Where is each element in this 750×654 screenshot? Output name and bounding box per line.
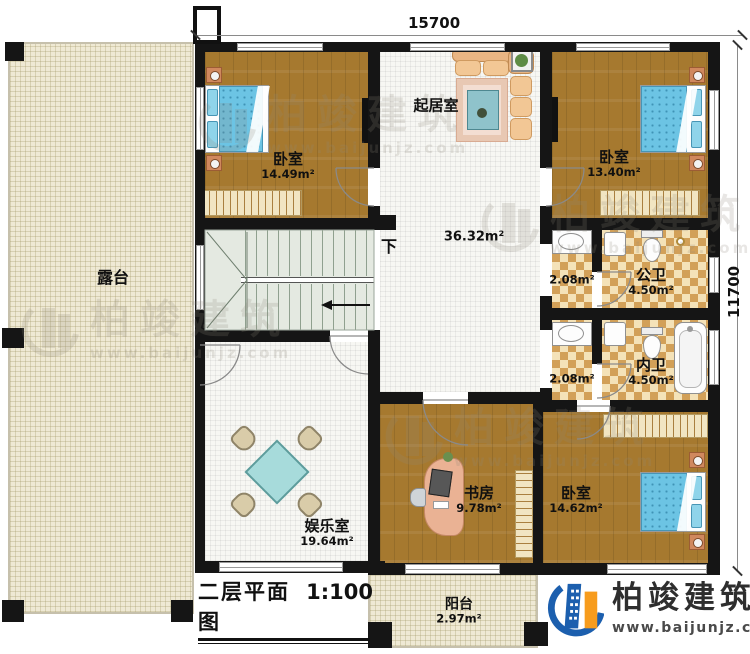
shower-head <box>676 237 685 246</box>
nightstand <box>689 534 705 550</box>
bathtub-inner <box>679 330 702 388</box>
window <box>196 87 204 150</box>
floor-plan: 柏竣建筑 www.baijunjz.com 柏竣建筑 www.baijunjz.… <box>0 0 750 654</box>
balcony-post <box>524 622 548 646</box>
room-area: 9.78m² <box>456 502 501 515</box>
plan-title: 二层平面图 <box>198 576 296 636</box>
nightstand <box>689 67 705 83</box>
title-underline <box>198 638 370 641</box>
wall <box>368 392 423 404</box>
room-name: 书房 <box>456 485 501 502</box>
dimension-line-top <box>195 35 742 36</box>
brand-name: 柏竣建筑 <box>612 583 750 614</box>
bathtub-drain <box>687 326 693 332</box>
sofa-cushion <box>510 76 532 96</box>
room-label-vestibule-top: 2.08m² <box>549 273 594 286</box>
nightstand <box>689 155 705 171</box>
table-decor <box>477 108 487 118</box>
stair-rail <box>241 277 374 283</box>
nightstand <box>206 155 222 171</box>
bed-pillow <box>207 89 218 116</box>
room-area: 4.50m² <box>628 374 673 387</box>
window <box>219 562 343 572</box>
room-area: 2.08m² <box>549 372 594 385</box>
terrace-post <box>171 600 193 622</box>
sofa-cushion <box>510 118 532 140</box>
room-name: 卧室 <box>261 151 314 168</box>
room-label-hall-area: 36.32m² <box>444 231 504 246</box>
room-label-terrace: 露台 <box>97 269 129 287</box>
terrace-floor <box>8 42 194 614</box>
plan-scale: 1:100 <box>306 580 373 604</box>
washing-machine <box>604 232 626 256</box>
window <box>607 564 707 574</box>
tv <box>552 97 558 142</box>
toilet-tank <box>641 327 663 335</box>
brand-logo-icon <box>546 576 604 642</box>
wardrobe <box>600 190 700 216</box>
window <box>709 330 719 385</box>
window <box>405 564 500 574</box>
room-label-private-bath: 内卫 4.50m² <box>628 357 673 387</box>
keyboard <box>433 501 449 509</box>
room-label-entertainment: 娱乐室 19.64m² <box>300 518 353 548</box>
washing-machine <box>604 322 626 346</box>
toilet-tank <box>641 230 663 238</box>
room-area: 2.97m² <box>436 612 481 625</box>
room-area: 36.32m² <box>444 231 504 246</box>
wall <box>540 218 720 230</box>
sink <box>558 325 584 342</box>
window <box>410 43 505 51</box>
wall <box>540 400 577 412</box>
wardrobe <box>202 190 302 216</box>
room-name: 卧室 <box>587 149 640 166</box>
window <box>576 43 670 51</box>
window <box>196 245 204 310</box>
window <box>709 90 719 150</box>
wall <box>592 320 602 364</box>
sofa-cushion <box>455 60 481 76</box>
bed-pillow <box>691 121 702 148</box>
room-area: 19.64m² <box>300 535 353 548</box>
wall <box>368 330 380 575</box>
wall <box>195 330 330 342</box>
room-label-living: 起居室 <box>413 97 458 114</box>
wall <box>533 404 543 563</box>
plant <box>443 452 453 462</box>
plant <box>515 54 528 67</box>
desk-chair <box>410 488 426 507</box>
sofa-cushion <box>483 60 509 76</box>
room-name: 娱乐室 <box>300 518 353 535</box>
title-underline-thin <box>198 643 370 644</box>
room-label-bedroom-top-left: 卧室 14.49m² <box>261 151 314 181</box>
wall <box>368 52 380 168</box>
brand-website: www.baijunjz.com <box>612 620 750 636</box>
window <box>709 257 719 293</box>
terrace-post <box>5 42 24 61</box>
stair-treads-lower <box>245 284 374 330</box>
room-name: 内卫 <box>628 357 673 374</box>
room-label-vestibule-bottom: 2.08m² <box>549 372 594 385</box>
room-name: 卧室 <box>549 485 602 502</box>
room-label-study: 书房 9.78m² <box>456 485 501 515</box>
dimension-width-label: 15700 <box>408 14 460 32</box>
nightstand <box>206 67 222 83</box>
wall-stub <box>374 215 396 230</box>
window <box>237 43 323 51</box>
room-name: 公卫 <box>628 267 673 284</box>
room-name: 起居室 <box>413 97 458 114</box>
nightstand <box>689 452 705 468</box>
wall <box>540 320 552 330</box>
room-area: 2.08m² <box>549 273 594 286</box>
wall <box>468 392 540 404</box>
sink <box>558 233 584 250</box>
dimension-height-label: 11700 <box>725 266 743 318</box>
wall <box>540 308 708 320</box>
room-area: 13.40m² <box>587 166 640 179</box>
terrace-post <box>2 600 24 622</box>
brand-logo: 柏竣建筑 www.baijunjz.com <box>546 576 750 642</box>
room-name: 露台 <box>97 269 129 287</box>
cabinet <box>515 470 533 558</box>
sofa-cushion <box>510 97 532 117</box>
room-area: 14.49m² <box>261 168 314 181</box>
wall <box>195 218 385 230</box>
bed-pillow <box>691 504 702 528</box>
wall <box>540 52 552 168</box>
room-label-bedroom-bottom: 卧室 14.62m² <box>549 485 602 515</box>
wall <box>540 230 552 244</box>
terrace-post <box>2 328 24 348</box>
room-label-balcony: 阳台 2.97m² <box>436 596 481 625</box>
computer-monitor <box>428 469 452 498</box>
wall <box>540 206 552 230</box>
wall <box>592 230 602 272</box>
bed-pillow <box>207 121 218 148</box>
stair-direction-label: 下 <box>381 238 397 256</box>
room-name: 阳台 <box>436 596 481 612</box>
wardrobe <box>603 414 708 438</box>
title-block: 二层平面图 1:100 本层建筑面积: 142.58m² 层高: 3.2m <box>198 576 373 654</box>
room-area: 14.62m² <box>549 502 602 515</box>
room-label-public-bath: 公卫 4.50m² <box>628 267 673 297</box>
room-area: 4.50m² <box>628 284 673 297</box>
wall <box>610 400 708 412</box>
stair-direction-text: 下 <box>381 238 397 256</box>
room-label-bedroom-top-right: 卧室 13.40m² <box>587 149 640 179</box>
stair-treads-upper <box>245 230 374 276</box>
